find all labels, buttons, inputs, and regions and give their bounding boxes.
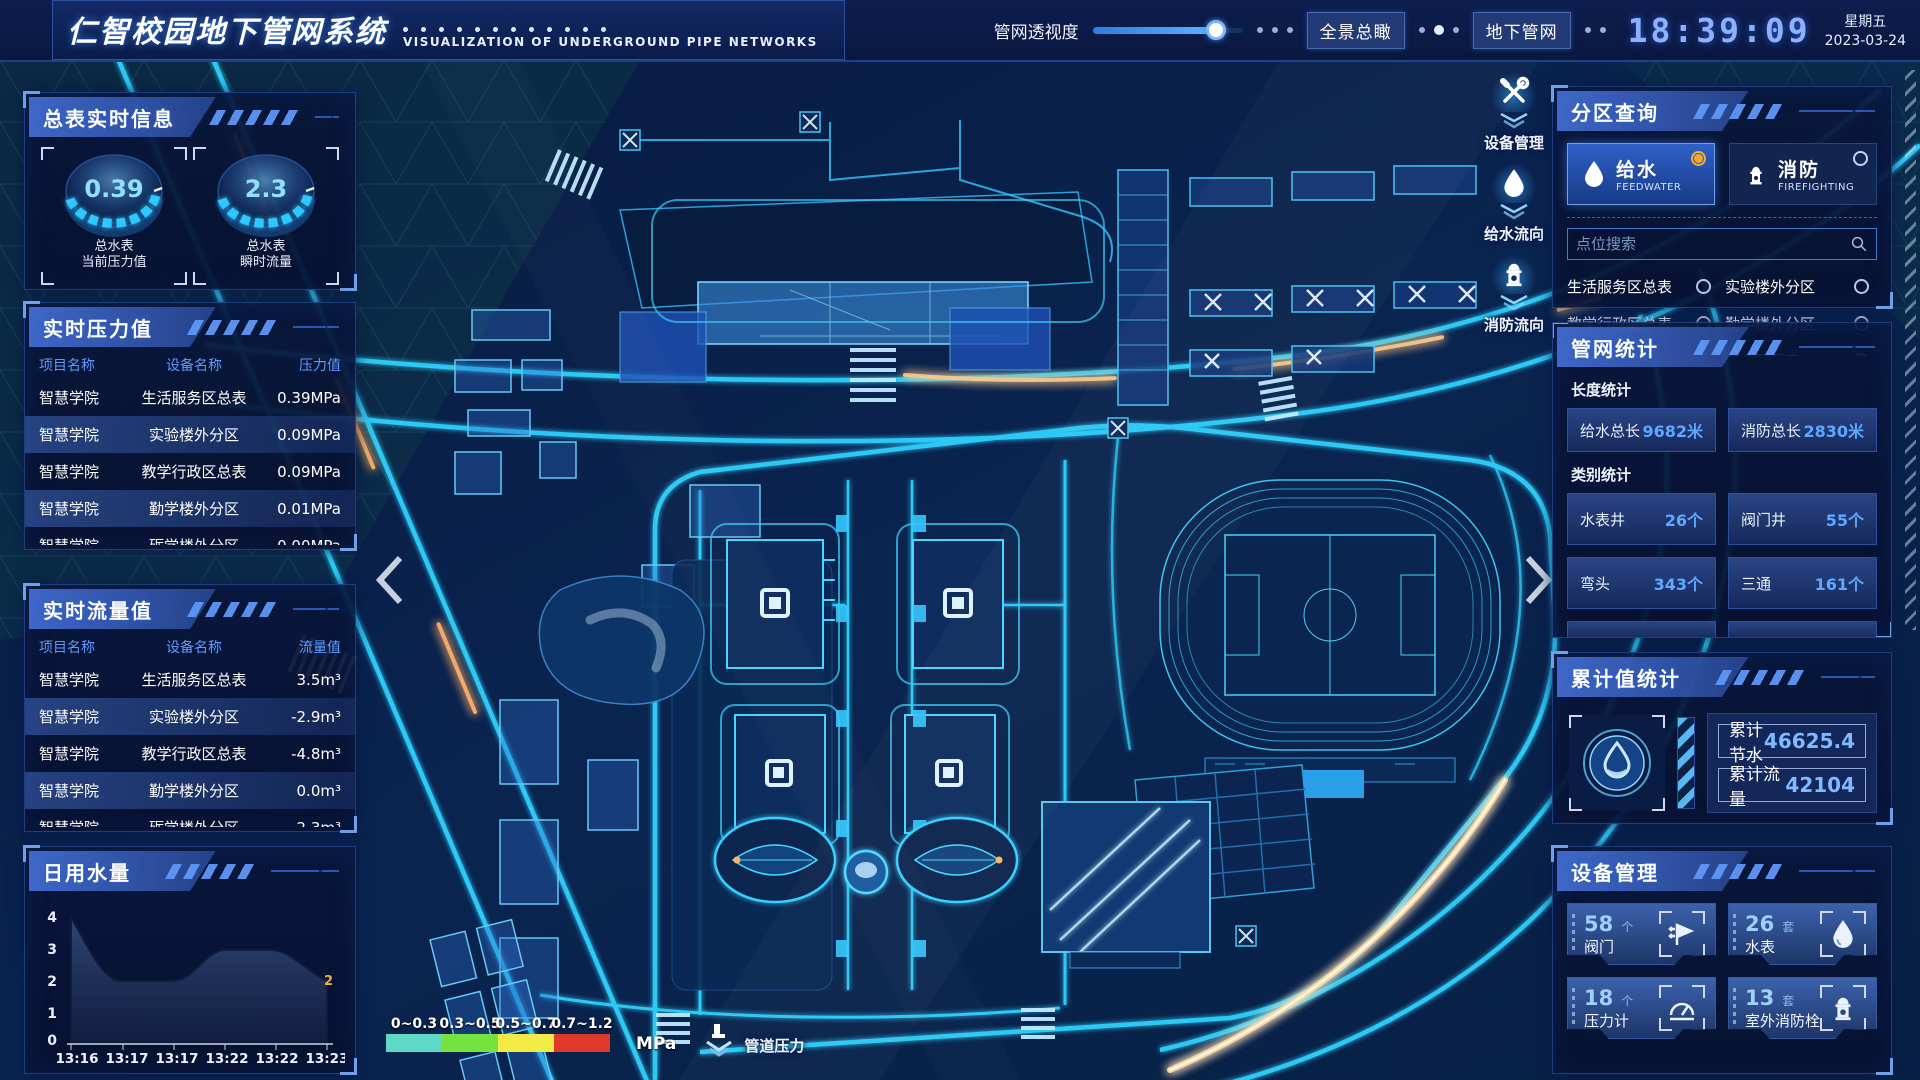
edge-decoration: [1905, 70, 1916, 630]
tab-firefighting[interactable]: 消防FIREFIGHTING: [1729, 143, 1877, 205]
table-row[interactable]: 智慧学院教学行政区总表-4.8m³: [25, 735, 355, 772]
panel-title: 分区查询: [1571, 97, 1659, 126]
cumulative-water-saved: 累计节水46625.4: [1718, 724, 1866, 758]
stripe-decoration: [1677, 717, 1695, 809]
chevron-down-icon: [1497, 112, 1531, 130]
category-stats-label: 类别统计: [1571, 464, 1891, 485]
table-row[interactable]: 智慧学院勤学楼外分区0.0m³: [25, 772, 355, 809]
stat-fire-length: 消防总长2830米: [1728, 408, 1877, 452]
panel-zone-query: 分区查询 给水FEEDWATER 消防FIREFIGHTING 生活服务区总表 …: [1552, 86, 1892, 308]
date: 2023-03-24: [1825, 33, 1906, 49]
chart-end-label: 2: [324, 974, 333, 989]
hydrant-icon: [1820, 985, 1866, 1031]
tab-radio: [1691, 151, 1706, 166]
panel-title: 实时流量值: [43, 595, 153, 624]
gauge-pressure: 0.39 总水表当前压力值: [41, 147, 187, 285]
device-card-hydrants[interactable]: 13套室外消防栓: [1728, 977, 1877, 1039]
panel-title: 实时压力值: [43, 313, 153, 342]
stat-clipped: [1728, 621, 1877, 638]
stat-feedwater-length: 给水总长9682米: [1567, 408, 1716, 452]
table-header: 项目名称设备名称压力值: [25, 347, 355, 379]
search-input[interactable]: [1576, 235, 1850, 253]
slider-thumb[interactable]: [1206, 20, 1226, 40]
tab-radio: [1853, 151, 1868, 166]
valve-icon: [1659, 911, 1705, 957]
water-savings-icon: [1569, 715, 1665, 811]
chevron-down-icon: [1497, 294, 1531, 312]
panel-title: 管网统计: [1571, 333, 1659, 362]
legend-swatch-yellow: [498, 1034, 554, 1052]
svg-text:13:22: 13:22: [256, 1051, 299, 1067]
panel-daily-water: 日用水量 4 3 2 1 0 13:16 13:17 13:17 13: [24, 846, 356, 1074]
table-header: 项目名称设备名称流量值: [25, 629, 355, 661]
svg-text:4: 4: [47, 910, 57, 926]
water-drop-icon: [1501, 168, 1527, 198]
gauge-flow: 2.3 总水表瞬时流量: [193, 147, 339, 285]
hydrant-icon: [1500, 259, 1528, 289]
svg-text:13:22: 13:22: [206, 1051, 249, 1067]
map-tool-column: 设备管理 给水流向 消防流向: [1468, 72, 1560, 345]
legend-swatch-red: [554, 1034, 610, 1052]
water-meter-icon: [1820, 911, 1866, 957]
dots-decoration: [1257, 27, 1293, 33]
table-row[interactable]: 智慧学院教学行政区总表0.09MPa: [25, 453, 355, 490]
table-row[interactable]: 智慧学院生活服务区总表3.5m³: [25, 661, 355, 698]
zone-item[interactable]: 实验楼外分区: [1725, 268, 1877, 305]
panel-title: 累计值统计: [1571, 663, 1681, 692]
table-row[interactable]: 智慧学院砺学楼外分区0.00MPa: [25, 527, 355, 545]
stat-tees: 三通161个: [1728, 557, 1877, 609]
svg-text:3: 3: [47, 942, 57, 958]
slashes-decoration: [209, 110, 303, 125]
water-drop-icon: [1582, 160, 1606, 188]
panel-flow: 实时流量值 项目名称设备名称流量值 智慧学院生活服务区总表3.5m³ 智慧学院实…: [24, 584, 356, 832]
pressure-marker-icon: [702, 1020, 736, 1060]
svg-text:1: 1: [47, 1006, 57, 1022]
legend-swatch-teal: [386, 1034, 442, 1052]
device-card-valves[interactable]: 58个阀门: [1567, 903, 1716, 965]
overview-button[interactable]: 全景总瞰: [1307, 12, 1405, 49]
slashes-decoration: [187, 602, 281, 617]
slashes-decoration: [187, 320, 281, 335]
transparency-slider[interactable]: [1093, 21, 1243, 39]
panel-pressure: 实时压力值 项目名称设备名称压力值 智慧学院生活服务区总表0.39MPa 智慧学…: [24, 302, 356, 550]
table-row[interactable]: 智慧学院勤学楼外分区0.01MPa: [25, 490, 355, 527]
tool-feedwater-flow[interactable]: 给水流向: [1484, 163, 1544, 244]
flow-table: 智慧学院生活服务区总表3.5m³ 智慧学院实验楼外分区-2.9m³ 智慧学院教学…: [25, 661, 355, 827]
dots-decoration: [1419, 25, 1459, 35]
cumulative-flow: 累计流量42104: [1718, 768, 1866, 802]
pressure-gauge-icon: [1659, 985, 1705, 1031]
weekday: 星期五: [1844, 11, 1886, 31]
svg-text:0: 0: [47, 1033, 57, 1049]
zone-item[interactable]: 生活服务区总表: [1567, 268, 1719, 305]
top-header-bar: 仁智校园地下管网系统 VISUALIZATION OF UNDERGROUND …: [0, 0, 1920, 62]
pressure-legend: 0~0.3 0.3~0.5 0.5~0.7 0.7~1.2 MPa 管道压力: [386, 1016, 804, 1060]
panel-title: 设备管理: [1571, 857, 1659, 886]
clock: 18:39:09: [1628, 11, 1811, 50]
slashes-decoration: [165, 864, 259, 879]
stat-valve-wells: 阀门井55个: [1728, 493, 1877, 545]
panel-title: 总表实时信息: [43, 103, 175, 132]
title-dots-decoration: [403, 27, 818, 32]
table-row[interactable]: 智慧学院实验楼外分区0.09MPa: [25, 416, 355, 453]
panel-pipe-stats: 管网统计 长度统计 给水总长9682米 消防总长2830米 类别统计 水表井26…: [1552, 322, 1892, 638]
slashes-decoration: [1693, 104, 1787, 119]
slashes-decoration: [1693, 864, 1787, 879]
legend-unit: MPa: [636, 1034, 676, 1054]
legend-swatch-green: [442, 1034, 498, 1052]
svg-text:13:16: 13:16: [56, 1051, 99, 1067]
device-card-water-meters[interactable]: 26套水表: [1728, 903, 1877, 965]
svg-text:13:17: 13:17: [106, 1051, 149, 1067]
panel-devices: 设备管理 58个阀门 26套水表 18个压力计 13套室外消防栓: [1552, 846, 1892, 1074]
length-stats-label: 长度统计: [1571, 379, 1891, 400]
tool-fire-flow[interactable]: 消防流向: [1484, 254, 1544, 335]
search-box[interactable]: [1567, 228, 1877, 260]
table-row[interactable]: 智慧学院实验楼外分区-2.9m³: [25, 698, 355, 735]
app-title-block: 仁智校园地下管网系统 VISUALIZATION OF UNDERGROUND …: [52, 0, 845, 60]
svg-text:2: 2: [47, 974, 57, 990]
daily-water-chart: 4 3 2 1 0 13:16 13:17 13:17 13:22 13:22 …: [31, 895, 345, 1067]
device-card-pressure-gauges[interactable]: 18个压力计: [1567, 977, 1716, 1039]
app-subtitle: VISUALIZATION OF UNDERGROUND PIPE NETWOR…: [403, 35, 818, 49]
tab-feedwater[interactable]: 给水FEEDWATER: [1567, 143, 1715, 205]
panel-title: 日用水量: [43, 857, 131, 886]
app-title: 仁智校园地下管网系统: [67, 7, 387, 51]
pressure-table: 智慧学院生活服务区总表0.39MPa 智慧学院实验楼外分区0.09MPa 智慧学…: [25, 379, 355, 545]
slashes-decoration: [1693, 340, 1787, 355]
zone-radio[interactable]: [1696, 279, 1711, 294]
search-icon[interactable]: [1850, 235, 1868, 253]
tools-icon: [1497, 75, 1531, 109]
stat-clipped: [1567, 621, 1716, 638]
stat-water-meter-wells: 水表井26个: [1567, 493, 1716, 545]
svg-text:13:23: 13:23: [306, 1051, 345, 1067]
table-row[interactable]: 智慧学院生活服务区总表0.39MPa: [25, 379, 355, 416]
panel-cumulative: 累计值统计 累计节水46625.4 累计流量42104: [1552, 652, 1892, 824]
underground-button[interactable]: 地下管网: [1473, 12, 1571, 49]
table-row[interactable]: 智慧学院砺学楼外分区2.3m³: [25, 809, 355, 827]
tool-device-management[interactable]: 设备管理: [1484, 72, 1544, 153]
stat-elbows: 弯头343个: [1567, 557, 1716, 609]
chevron-down-icon: [1497, 203, 1531, 221]
dots-decoration: [1585, 27, 1606, 33]
pipe-pressure-toggle[interactable]: 管道压力: [702, 1020, 804, 1060]
panel-master-info: 总表实时信息 0.39 总水表当前压力值 2.3 总水表瞬时流量: [24, 92, 356, 290]
transparency-label: 管网透视度: [994, 18, 1079, 43]
hydrant-icon: [1744, 160, 1768, 188]
svg-text:13:17: 13:17: [156, 1051, 199, 1067]
slashes-decoration: [1715, 670, 1809, 685]
zone-radio[interactable]: [1854, 279, 1869, 294]
